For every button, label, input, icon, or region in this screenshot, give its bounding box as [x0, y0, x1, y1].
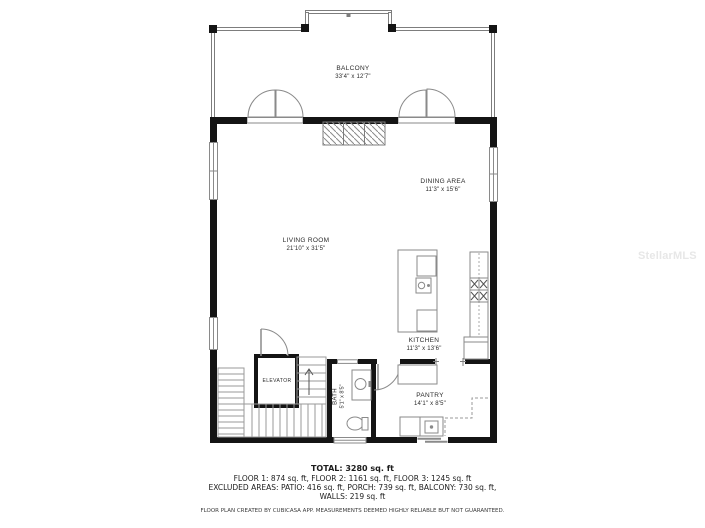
kitchen-label: KITCHEN 11'3" x 13'6" [374, 336, 474, 353]
living-room-label: LIVING ROOM 21'10" x 31'5" [256, 236, 356, 253]
elevator-label: ELEVATOR [252, 378, 302, 384]
pocket-door [338, 360, 358, 364]
opening-ticks [433, 358, 466, 366]
stairwell-hatch [323, 122, 385, 145]
pantry-label: PANTRY 14'1" x 8'5" [380, 391, 480, 408]
disclaimer: FLOOR PLAN CREATED BY CUBICASA APP. MEAS… [0, 508, 705, 515]
kitchen-island [398, 250, 437, 332]
island-appliance-icon [417, 310, 437, 331]
room-dims: 11'3" x 13'6" [374, 345, 474, 353]
room-name: KITCHEN [374, 336, 474, 345]
dining-area-label: DINING AREA 11'3" x 15'6" [393, 177, 493, 194]
floor-areas: FLOOR 1: 874 sq. ft, FLOOR 2: 1161 sq. f… [0, 474, 705, 483]
pantry-door [374, 364, 400, 390]
room-name: LIVING ROOM [256, 236, 356, 245]
room-dims: 33'4" x 12'7" [303, 73, 403, 81]
room-dims: 11'3" x 15'6" [393, 186, 493, 194]
room-dims: 21'10" x 31'5" [256, 245, 356, 253]
sliding-door [418, 439, 448, 442]
stove-icon [470, 278, 488, 302]
total-area: TOTAL: 3280 sq. ft [0, 464, 705, 474]
elevator-shaft [256, 329, 297, 406]
bath-fixtures [347, 370, 371, 430]
room-dims: 5'1" x 8'5" [340, 372, 347, 422]
room-name: DINING AREA [393, 177, 493, 186]
room-name: PANTRY [380, 391, 480, 400]
balcony-label: BALCONY 33'4" x 12'7" [303, 64, 403, 81]
room-name: BATH [332, 372, 340, 422]
stellar-mls-watermark: StellarMLS [638, 250, 705, 262]
vanity-sink-icon [355, 379, 366, 390]
bath-label: BATH 5'1" x 8'5" [332, 372, 347, 422]
french-door-left [247, 90, 303, 123]
toilet-icon [347, 417, 368, 430]
stair-direction-arrow [305, 369, 313, 395]
island-appliance-icon [417, 256, 436, 276]
excluded-areas: EXCLUDED AREAS: PATIO: 416 sq. ft, PORCH… [0, 483, 705, 492]
walls-area: WALLS: 219 sq. ft [0, 492, 705, 501]
french-door-right [398, 89, 455, 123]
room-name: BALCONY [303, 64, 403, 73]
area-summary: TOTAL: 3280 sq. ft FLOOR 1: 874 sq. ft, … [0, 464, 705, 515]
room-dims: 14'1" x 8'5" [380, 400, 480, 408]
floor-plan-page: BALCONY 33'4" x 12'7" LIVING ROOM 21'10"… [0, 0, 705, 528]
